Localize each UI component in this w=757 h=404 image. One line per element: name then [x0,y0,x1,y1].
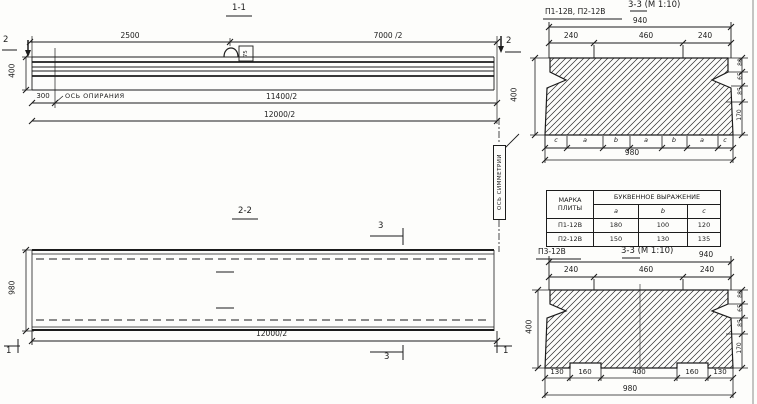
cell-a: 180 [594,219,639,233]
section-bottom-mark-label: П3-12В [538,248,566,256]
symmetry-axis-label: ОСЬ СИММЕТРИИ [497,154,503,210]
hatched-cross-section-bottom [545,290,733,368]
dim-940-bottom: 940 [694,251,718,259]
table-row: П1-12В 180 100 120 [547,219,721,233]
dim-160-left: 160 [573,369,597,376]
section-bottom-title: 3-3 (М 1:10) [621,247,673,256]
dim-940-top: 940 [628,17,652,25]
letter-a-2: a [639,137,653,144]
cut-marker-3-top: 3 [378,222,383,231]
cut-marker-2-left: 2 [3,36,8,45]
dim-170-top: 170 [737,106,743,124]
dim-85-top: 85 [738,82,744,100]
dim-160-right: 160 [680,369,704,376]
letter-a-1: a [578,137,592,144]
dim-240-left-bottom: 240 [559,266,583,274]
subheader-c: c [688,205,721,219]
dim-130-right: 130 [708,369,732,376]
dim-400-section-bottom: 400 [525,315,533,339]
subheader-a: a [594,205,639,219]
letter-b-1: b [609,137,623,144]
section-top-title: 3-3 (М 1:10) [628,1,680,10]
dim-460-bottom: 460 [634,266,658,274]
cell-mark: П2-12В [547,233,594,247]
dim-980-height: 980 [8,276,16,300]
cell-a: 150 [594,233,639,247]
loop-position-tag: 75 [239,46,253,61]
dim-240-left-top: 240 [559,32,583,40]
dim-400-bottom-mid: 400 [627,369,651,376]
cut-marker-3-bottom: 3 [384,353,389,362]
cell-b: 130 [639,233,688,247]
lifting-loop-icon [224,48,238,57]
letter-a-3: a [695,137,709,144]
dim-130-left: 130 [545,369,569,376]
subheader-b: b [639,205,688,219]
dim-12000-2-view1: 12000/2 [264,111,295,119]
dim-300: 300 [32,93,54,100]
engineering-drawing-sheet: 1-1 2500 7000 /2 2 2 75 400 300 ОСЬ ОПИР… [0,0,757,404]
section-3-3-bottom-linework [532,256,748,398]
dim-12000-2-view2: 12000/2 [256,330,287,338]
header-letter-expression: БУКВЕННОЕ ВЫРАЖЕНИЕ [594,191,721,205]
cut-marker-2-right: 2 [506,37,511,46]
table-header-row: МАРКА ПЛИТЫ БУКВЕННОЕ ВЫРАЖЕНИЕ [547,191,721,205]
dim-240-right-bottom: 240 [695,266,719,274]
dim-85-bottom: 85 [738,314,744,332]
dim-980-bottom: 980 [616,385,644,393]
section-top-mark-label: П1-12В, П2-12В [545,8,605,16]
view-1-1-title: 1-1 [226,4,252,13]
dim-980-top: 980 [618,149,646,157]
dim-460-top: 460 [634,32,658,40]
support-axis-label: ОСЬ ОПИРАНИЯ [65,93,125,100]
letter-c-2: c [718,137,732,144]
dim-240-right-top: 240 [693,32,717,40]
hatched-cross-section-top [545,58,733,135]
letter-b-2: b [667,137,681,144]
dim-170-bottom: 170 [737,339,743,357]
letter-c-1: c [549,137,563,144]
view-1-1-linework [2,16,521,124]
view-2-2-title: 2-2 [232,207,258,216]
table-row: П2-12В 150 130 135 [547,233,721,247]
cut-marker-1-right: 1 [503,347,508,356]
cell-c: 135 [688,233,721,247]
header-mark: МАРКА ПЛИТЫ [547,191,594,219]
cell-mark: П1-12В [547,219,594,233]
plate-spec-table: МАРКА ПЛИТЫ БУКВЕННОЕ ВЫРАЖЕНИЕ a b c П1… [546,190,721,247]
cell-b: 100 [639,219,688,233]
cut-marker-1-left: 1 [6,347,11,356]
dim-7000-2: 7000 /2 [366,32,410,40]
dim-400-height: 400 [8,59,16,83]
dim-11400-2: 11400/2 [266,93,297,101]
cell-c: 120 [688,219,721,233]
dim-2500: 2500 [112,32,148,40]
view-2-2-linework [4,219,512,360]
symmetry-axis-flag: ОСЬ СИММЕТРИИ [493,145,506,220]
dim-400-section-top: 400 [510,83,518,107]
